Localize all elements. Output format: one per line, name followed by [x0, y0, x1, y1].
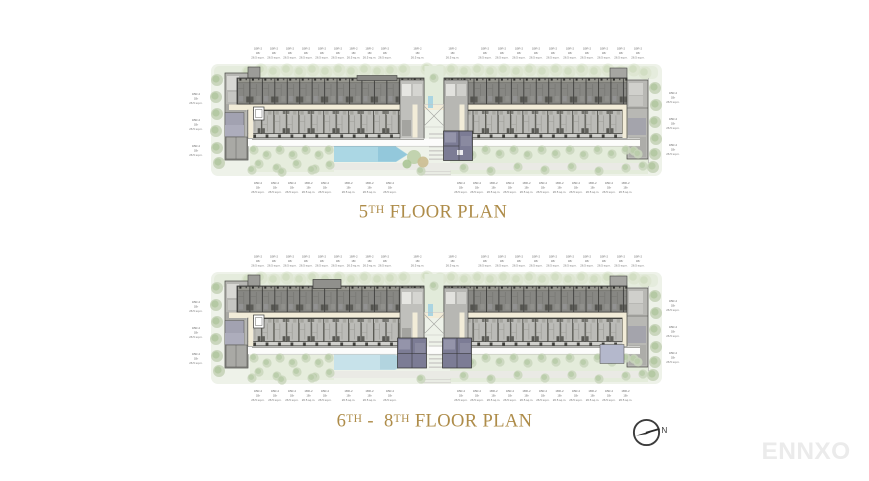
svg-text:6TH - 8TH FLOOR PLAN: 6TH - 8TH FLOOR PLAN: [337, 412, 533, 432]
svg-text:5TH FLOOR PLAN: 5TH FLOOR PLAN: [359, 203, 507, 223]
svg-text:N: N: [662, 426, 668, 435]
svg-text:ENNXO: ENNXO: [762, 438, 851, 465]
